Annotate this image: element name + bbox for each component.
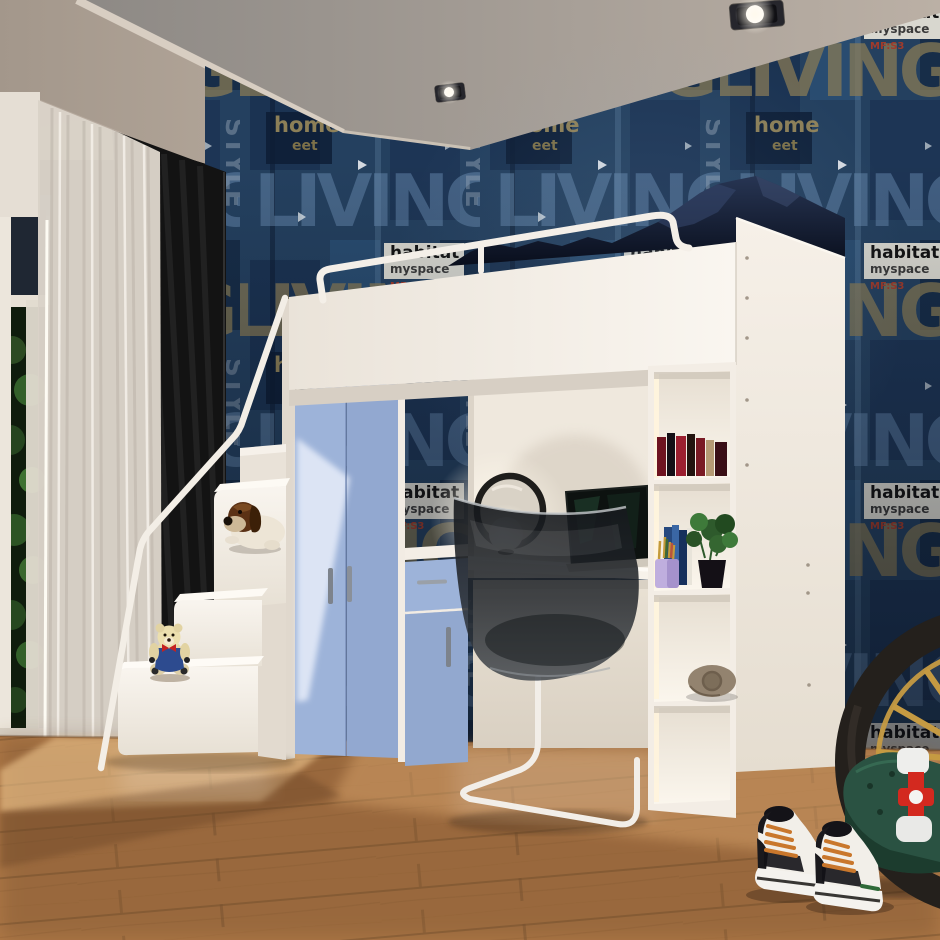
window-upper-frame xyxy=(0,92,40,217)
pump-roller-top xyxy=(897,748,929,774)
pump-hub-cap xyxy=(909,790,923,804)
dog-paw xyxy=(225,536,239,544)
plant-pot xyxy=(698,560,726,588)
bed-side-panel xyxy=(736,218,845,772)
wardrobe-right-frame xyxy=(398,380,405,762)
bedroom-render: LIVING LIVING STYLE habitat myspace MF:S… xyxy=(0,0,940,940)
dog-nose xyxy=(224,517,233,526)
dog-eye xyxy=(238,510,242,514)
teddy-overalls xyxy=(155,648,184,672)
wardrobe xyxy=(295,380,405,762)
sheer-curtain xyxy=(38,100,162,748)
shelf-unit xyxy=(648,362,738,818)
scene-canvas: LIVING LIVING STYLE habitat myspace MF:S… xyxy=(0,0,940,940)
shelf-opening-4 xyxy=(654,705,730,804)
cabinet-door-shade xyxy=(405,610,468,766)
wardrobe-handle-left xyxy=(328,568,333,604)
pump-roller-bottom xyxy=(896,816,932,842)
window-frame-left xyxy=(0,213,11,736)
cabinet-door-handle xyxy=(446,627,451,667)
wardrobe-handle-right xyxy=(347,566,352,602)
chair-seat xyxy=(485,614,625,666)
window-frame-mid xyxy=(26,300,39,736)
red-pump xyxy=(896,748,934,842)
sheer-sunlit-edge xyxy=(45,220,47,740)
wardrobe-door-right-shade xyxy=(347,382,398,758)
